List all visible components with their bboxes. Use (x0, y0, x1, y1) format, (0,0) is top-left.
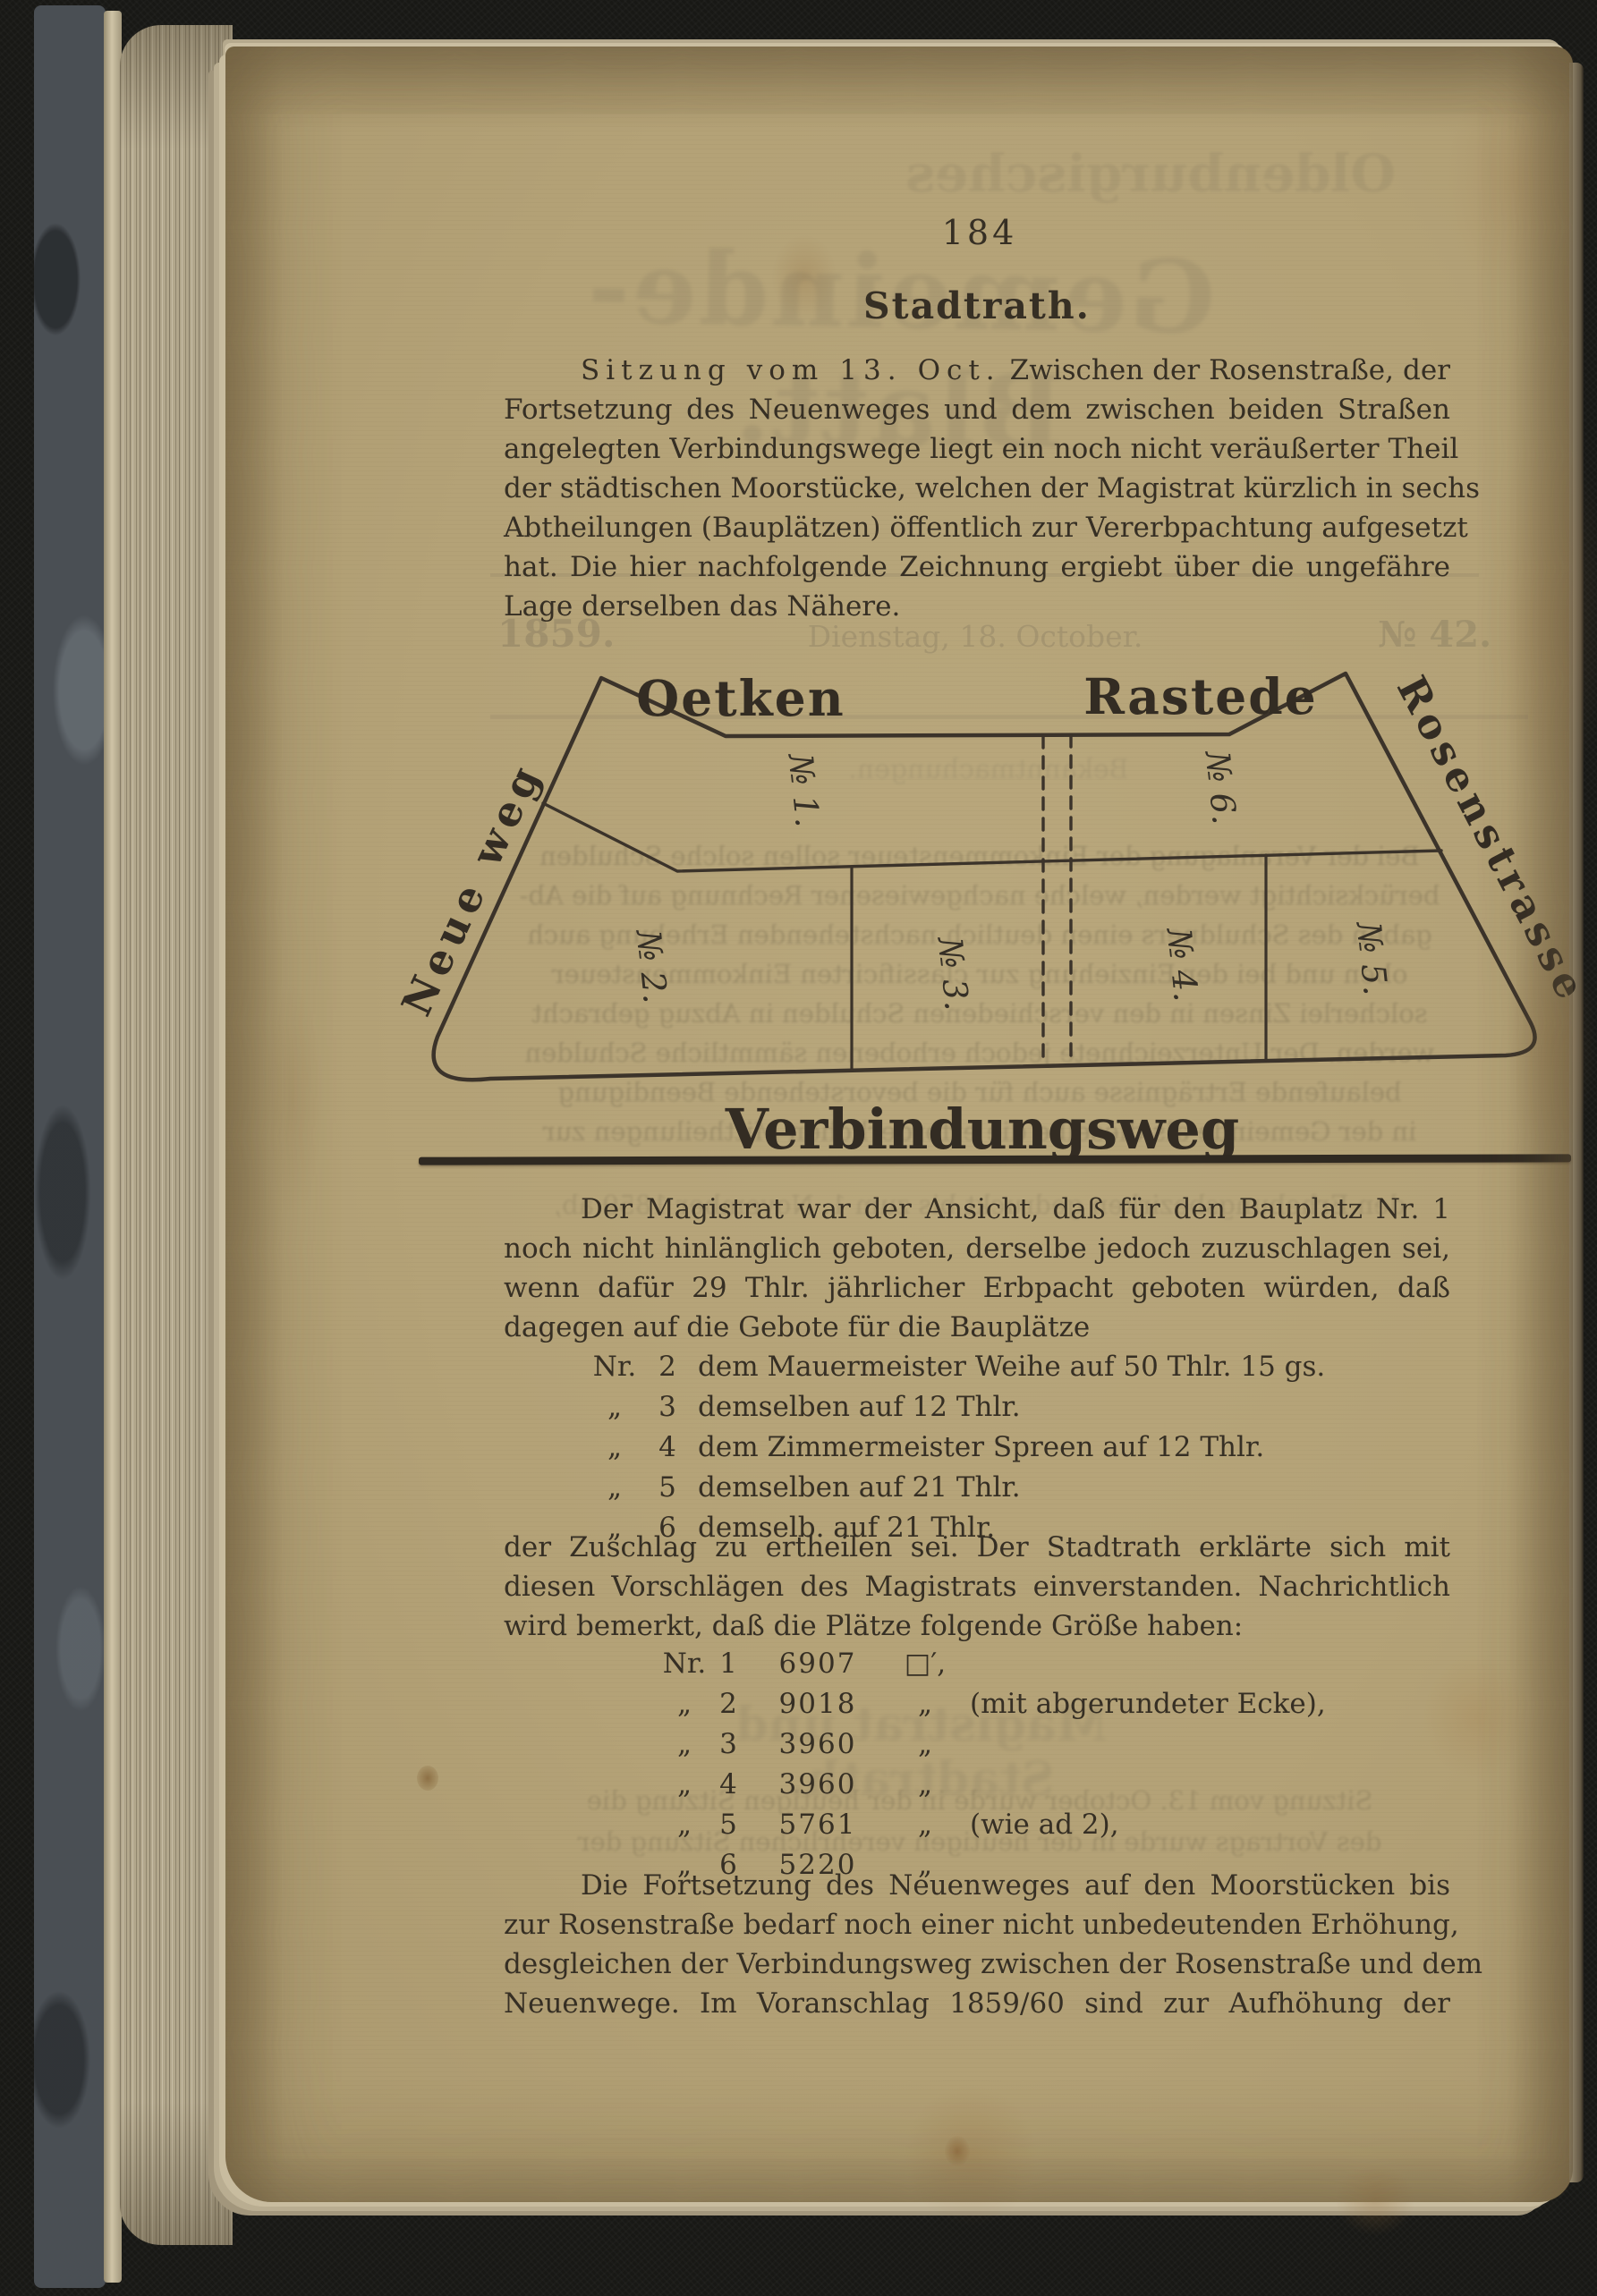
row-mark: „ (658, 1765, 710, 1805)
plot-label-1: № 1. (781, 750, 828, 829)
size-row: „43960„ (658, 1765, 1326, 1805)
row-area-value: 9018 (746, 1684, 889, 1724)
plot-label-2: № 2. (629, 927, 675, 1005)
row-note: (wie ad 2), (970, 1805, 1119, 1845)
size-row: „29018„(mit abgerundeter Ecke), (658, 1684, 1326, 1724)
row-area-unit: „ (889, 1765, 961, 1805)
text-line: Neuenwege. Im Voranschlag 1859/60 sind z… (504, 1984, 1450, 2023)
paragraph-3: der Zuschlag zu ertheilen sei. Der Stadt… (504, 1528, 1450, 1646)
photographed-book-page: Oldenburgisches Gemeinde-Blatt. 1859. Di… (0, 0, 1597, 2296)
row-area-unit: „ (889, 1805, 961, 1845)
row-area-unit: „ (889, 1684, 961, 1724)
row-number: 5 (710, 1805, 746, 1845)
street-label-rosenstrasse: Rosenstrasse (1388, 668, 1588, 1011)
row-text: dem Zimmermeister Spreen auf 12 Thlr. (698, 1428, 1264, 1468)
row-note: (mit abgerundeter Ecke), (970, 1684, 1326, 1724)
row-mark: „ (658, 1684, 710, 1724)
plot-label-6: № 6. (1198, 748, 1244, 826)
size-row: „55761„(wie ad 2), (658, 1805, 1326, 1845)
street-label-rastede: Rastede (1083, 667, 1317, 725)
text-line: angelegten Verbindungswege liegt ein noc… (504, 429, 1450, 469)
row-number: 5 (650, 1468, 685, 1508)
row-number: 1 (710, 1644, 746, 1684)
bid-row: „4dem Zimmermeister Spreen auf 12 Thlr. (580, 1428, 1325, 1468)
text-line: der städtischen Moorstücke, welchen der … (504, 469, 1450, 508)
plot-label-3: № 3. (930, 934, 977, 1012)
article-heading: Stadtrath. (504, 284, 1450, 327)
text-line: Abtheilungen (Bauplätzen) öffentlich zur… (504, 508, 1450, 547)
row-text: demselben auf 21 Thlr. (698, 1468, 1021, 1508)
row-area-unit: □′, (889, 1644, 961, 1684)
size-list: Nr.16907□′, „29018„(mit abgerundeter Eck… (658, 1644, 1326, 1885)
row-area-unit: „ (889, 1724, 961, 1765)
bid-list: Nr.2dem Mauermeister Weihe auf 50 Thlr. … (580, 1347, 1325, 1548)
text-line: wird bemerkt, daß die Plätze folgende Gr… (504, 1606, 1450, 1646)
bid-row: „3demselben auf 12 Thlr. (580, 1387, 1325, 1428)
row-area-value: 6907 (746, 1644, 889, 1684)
text-line: Der Magistrat war der Ansicht, daß für d… (504, 1190, 1450, 1229)
size-row: Nr.16907□′, (658, 1644, 1326, 1684)
row-number: 3 (650, 1387, 685, 1428)
text-line: dagegen auf die Gebote für die Bauplätze (504, 1308, 1450, 1347)
row-mark: „ (580, 1428, 650, 1468)
paragraph-4: Die Fortsetzung des Neuenweges auf den M… (504, 1866, 1450, 2023)
street-label-verbindungsweg: Verbindungsweg (725, 1097, 1239, 1162)
row-number: 4 (710, 1765, 746, 1805)
text-line: der Zuschlag zu ertheilen sei. Der Stadt… (504, 1528, 1450, 1567)
row-area-value: 5761 (746, 1805, 889, 1845)
text-line: Sitzung vom 13. Oct. Zwischen der Rosens… (504, 351, 1450, 390)
row-mark: „ (658, 1805, 710, 1845)
row-number: 2 (650, 1347, 685, 1387)
row-text: demselben auf 12 Thlr. (698, 1387, 1021, 1428)
street-label-neue-weg: Neue weg (394, 754, 552, 1023)
diagram-outline (434, 674, 1535, 1080)
row-number: 4 (650, 1428, 685, 1468)
row-mark: „ (658, 1724, 710, 1765)
plot-label-5: № 5. (1349, 919, 1396, 997)
page-number: 184 (913, 213, 1047, 252)
paragraph-2: Der Magistrat war der Ansicht, daß für d… (504, 1190, 1450, 1347)
row-text: dem Mauermeister Weihe auf 50 Thlr. 15 g… (698, 1347, 1325, 1387)
text-span: Zwischen der Rosenstraße, der (1010, 354, 1450, 386)
diagram-band-separator (543, 803, 1441, 871)
paragraph-1: Sitzung vom 13. Oct. Zwischen der Rosens… (504, 351, 1450, 626)
text-line: desgleichen der Verbindungsweg zwischen … (504, 1944, 1450, 1984)
text-line: wenn dafür 29 Thlr. jährlicher Erbpacht … (504, 1268, 1450, 1308)
plot-label-4: № 4. (1160, 925, 1206, 1004)
session-date: Sitzung vom 13. Oct. (581, 354, 1001, 386)
plot-diagram: Oetken Rastede Neue weg Rosenstrasse Ver… (394, 646, 1588, 1182)
text-line: Die Fortsetzung des Neuenweges auf den M… (504, 1866, 1450, 1905)
row-mark: Nr. (580, 1347, 650, 1387)
text-line: zur Rosenstraße bedarf noch einer nicht … (504, 1905, 1450, 1944)
book-cover-edge (34, 5, 106, 2288)
row-mark: Nr. (658, 1644, 710, 1684)
text-line: Lage derselben das Nähere. (504, 587, 1450, 626)
text-line: Fortsetzung des Neuenweges und dem zwisc… (504, 390, 1450, 429)
row-area-value: 3960 (746, 1765, 889, 1805)
text-line: noch nicht hinlänglich geboten, derselbe… (504, 1229, 1450, 1268)
row-mark: „ (580, 1387, 650, 1428)
text-line: hat. Die hier nachfolgende Zeichnung erg… (504, 547, 1450, 587)
size-row: „33960„ (658, 1724, 1326, 1765)
street-label-oetken: Oetken (636, 669, 845, 727)
cover-board-edge (104, 11, 122, 2283)
row-mark: „ (580, 1468, 650, 1508)
page-stack-fore-edge (120, 25, 233, 2245)
row-number: 2 (710, 1684, 746, 1724)
row-number: 3 (710, 1724, 746, 1765)
bid-row: „5demselben auf 21 Thlr. (580, 1468, 1325, 1508)
text-line: diesen Vorschlägen des Magistrats einver… (504, 1567, 1450, 1606)
row-area-value: 3960 (746, 1724, 889, 1765)
bid-row: Nr.2dem Mauermeister Weihe auf 50 Thlr. … (580, 1347, 1325, 1387)
